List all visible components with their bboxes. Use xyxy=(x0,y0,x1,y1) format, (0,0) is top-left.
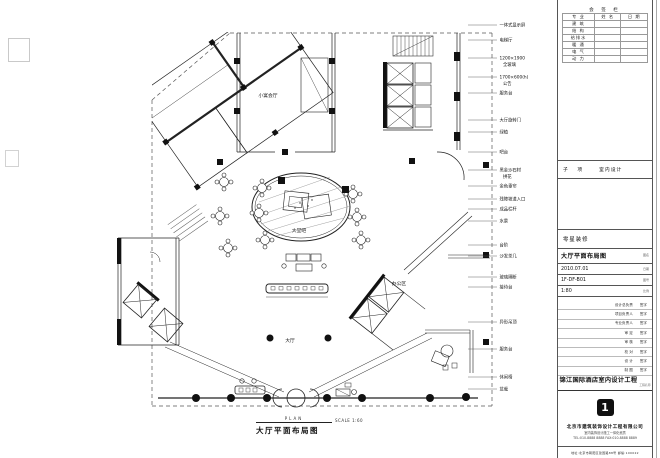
company-logo-area: 1 xyxy=(558,390,652,425)
sign-cell: 暖 通 xyxy=(563,42,595,49)
callout-label: 沙发茶几 xyxy=(500,253,518,260)
credit-text: 审 定 xyxy=(624,331,632,336)
sheet-edge-line xyxy=(656,0,657,458)
callout-label: 全玻璃 xyxy=(503,61,517,68)
callout-label: 服务台 xyxy=(500,346,513,353)
callout-label: 金色垂帘 xyxy=(500,183,517,190)
subproject-label: 子 项 xyxy=(563,166,586,173)
callout-label: 拼花 xyxy=(503,173,512,180)
sign-cell xyxy=(595,35,621,42)
company-logo: 1 xyxy=(597,399,614,416)
credit-row: 项目负责人签字 xyxy=(558,310,652,319)
room-label: 办公区 xyxy=(392,280,407,287)
misc-row-label: 零星装修 xyxy=(563,235,589,243)
sign-cell xyxy=(595,28,621,35)
misc-row: 零星装修 xyxy=(558,229,652,249)
back-of-house-rooms xyxy=(131,0,336,191)
callout-label: 绿植 xyxy=(500,129,509,136)
callout-label: 玻璃隔断 xyxy=(500,274,518,281)
room-label: 大厅 xyxy=(285,337,295,344)
credit-rows: 设计总负责签字项目负责人签字专业负责人签字审 定签字审 核签字校 对签字设 计签… xyxy=(558,301,652,376)
right-wall xyxy=(404,33,490,274)
project-name-row: 锦江国际酒店室内设计工程 工程名称 xyxy=(558,368,652,391)
scale-note: SCALE 1:60 xyxy=(335,418,363,423)
callout-annotations: 一体式显示屏电梯厅1200×1900全玻璃1700×600(h)公告服务台大厅旋… xyxy=(468,22,529,393)
credit-text: 签字 xyxy=(640,321,647,326)
info-value: 1F-DF-B01 xyxy=(561,278,586,283)
sign-cell xyxy=(595,21,621,28)
sign-table-title: 会 签 栏 xyxy=(563,6,648,14)
callout-label: 接待台 xyxy=(500,284,513,291)
callout-label: 服务台 xyxy=(500,90,513,97)
room-label: 大堂吧 xyxy=(292,227,307,234)
planter-fixture xyxy=(336,383,357,396)
sofa-group xyxy=(282,254,326,271)
callout-label: 黑金沙石材 xyxy=(500,167,522,174)
credit-row: 设 计签字 xyxy=(558,357,652,366)
info-tag: 图号 xyxy=(643,278,649,282)
sign-cell xyxy=(621,42,648,49)
credit-text: 设 计 xyxy=(624,359,632,364)
elevator-bank xyxy=(383,62,433,130)
concierge-desk xyxy=(235,379,265,394)
credit-row: 专业负责人签字 xyxy=(558,320,652,329)
canopy-lines xyxy=(165,333,432,397)
sign-cell xyxy=(621,21,648,28)
sign-cell: 动 力 xyxy=(563,56,595,63)
info-tag: 图名 xyxy=(643,253,649,257)
info-row: 大厅平面布局图图名 xyxy=(558,247,652,264)
company-block: 北京市建筑装饰设计工程有限公司 室内装饰设计施工一体化资质 TEL:010-88… xyxy=(558,425,652,440)
facade xyxy=(158,333,478,407)
sign-cell xyxy=(621,35,648,42)
signature-table: 会 签 栏 专 业姓 名日 期建 筑结 构给排水暖 通电 气动 力 xyxy=(558,6,652,63)
info-value: 大厅平面布局图 xyxy=(561,251,607,260)
address-text: 地址:北京市朝阳区建国路88号 邮编:100022 xyxy=(571,451,639,455)
sign-cell: 电 气 xyxy=(563,49,595,56)
drawing-title-block: PLAN SCALE 1:60 大厅平面布局图 xyxy=(256,416,386,436)
project-name-tag: 工程名称 xyxy=(639,383,650,387)
credit-text: 项目负责人 xyxy=(615,312,633,317)
entry-steps xyxy=(168,205,208,241)
callout-label: 残障坡道入口 xyxy=(500,196,526,203)
sign-cell: 给排水 xyxy=(563,35,595,42)
credit-row: 审 核签字 xyxy=(558,339,652,348)
credit-text: 签字 xyxy=(640,350,647,355)
titleblock: 会 签 栏 专 业姓 名日 期建 筑结 构给排水暖 通电 气动 力 子 项 室内… xyxy=(557,0,653,458)
sign-cell xyxy=(621,56,648,63)
credit-text: 签字 xyxy=(640,359,647,364)
info-tag: 比例 xyxy=(643,289,649,293)
credit-text: 签字 xyxy=(640,340,647,345)
sign-cell: 建 筑 xyxy=(563,21,595,28)
sign-cell xyxy=(595,49,621,56)
credit-text: 签字 xyxy=(640,312,647,317)
callout-label: 一体式显示屏 xyxy=(500,22,526,29)
cafe-tables xyxy=(211,173,370,257)
credit-row: 设计总负责签字 xyxy=(558,301,652,310)
sign-cell xyxy=(621,28,648,35)
sign-col-header: 姓 名 xyxy=(595,14,621,21)
callout-label: 成品栏杆 xyxy=(500,206,518,213)
left-wing xyxy=(117,238,183,345)
sign-cell xyxy=(595,42,621,49)
sign-cell xyxy=(595,56,621,63)
drawing-sheet: 小宴会厅大堂吧大厅办公区 一体式显示屏电梯厅1200×1900全玻璃1700×6… xyxy=(0,0,660,458)
callout-label: 台阶 xyxy=(500,242,509,249)
reception-counter xyxy=(266,284,328,297)
callout-label: 大厅旋转门 xyxy=(500,117,521,124)
logo-glyph: 1 xyxy=(601,401,609,414)
callout-label: 公告 xyxy=(503,80,512,87)
sheet-mark xyxy=(5,150,19,167)
sign-cell xyxy=(621,49,648,56)
credit-text: 签字 xyxy=(640,331,647,336)
subproject-value: 室内设计 xyxy=(599,166,622,173)
callout-label: 休闲椅 xyxy=(500,374,514,381)
project-name: 锦江国际酒店室内设计工程 xyxy=(559,375,637,384)
stair-hatch xyxy=(393,36,433,56)
callout-label: 水景 xyxy=(500,218,509,225)
floor-plan-canvas: 小宴会厅大堂吧大厅办公区 一体式显示屏电梯厅1200×1900全玻璃1700×6… xyxy=(0,0,556,458)
sign-cell: 结 构 xyxy=(563,28,595,35)
sign-col-header: 日 期 xyxy=(621,14,648,21)
hall-columns xyxy=(267,335,332,342)
info-value: 1:80 xyxy=(561,289,572,294)
company-phone: TEL:010-8888 8888 FAX:010-8888 8889 xyxy=(558,436,652,440)
drawing-title-cn: 大厅平面布局图 xyxy=(256,425,386,436)
credit-text: 校 对 xyxy=(624,350,632,355)
banquet-room-walls xyxy=(234,33,335,155)
company-address: 地址:北京市朝阳区建国路88号 邮编:100022 xyxy=(558,446,652,458)
sheet-mark xyxy=(8,38,30,62)
sign-col-header: 专 业 xyxy=(563,14,595,21)
bottom-right-wing xyxy=(349,274,473,373)
info-value: 2010.07.01 xyxy=(561,267,588,272)
credit-text: 专业负责人 xyxy=(615,321,633,326)
info-row: 1F-DF-B01图号 xyxy=(558,275,652,286)
info-row: 2010.07.01日期 xyxy=(558,264,652,275)
credit-row: 校 对签字 xyxy=(558,348,652,357)
credit-text: 签字 xyxy=(640,303,647,308)
callout-label: 电梯厅 xyxy=(500,37,514,44)
callout-label: 盆栽 xyxy=(500,386,509,393)
room-label: 小宴会厅 xyxy=(258,92,277,99)
info-row: 1:80比例 xyxy=(558,286,652,297)
callout-label: 1200×1900 xyxy=(500,56,526,62)
credit-text: 设计总负责 xyxy=(615,303,633,308)
callout-label: 吧台 xyxy=(500,149,509,156)
callout-label: 1700×600(h) xyxy=(500,75,529,81)
credit-text: 审 核 xyxy=(624,340,632,345)
subproject-row: 子 项 室内设计 xyxy=(558,160,652,179)
drawing-info-rows: 大厅平面布局图图名2010.07.01日期1F-DF-B01图号1:80比例 xyxy=(558,247,652,297)
info-tag: 日期 xyxy=(643,267,649,271)
credit-row: 审 定签字 xyxy=(558,329,652,338)
callout-label: 异形吊顶 xyxy=(500,319,518,326)
plan-en-label: PLAN xyxy=(256,416,332,423)
